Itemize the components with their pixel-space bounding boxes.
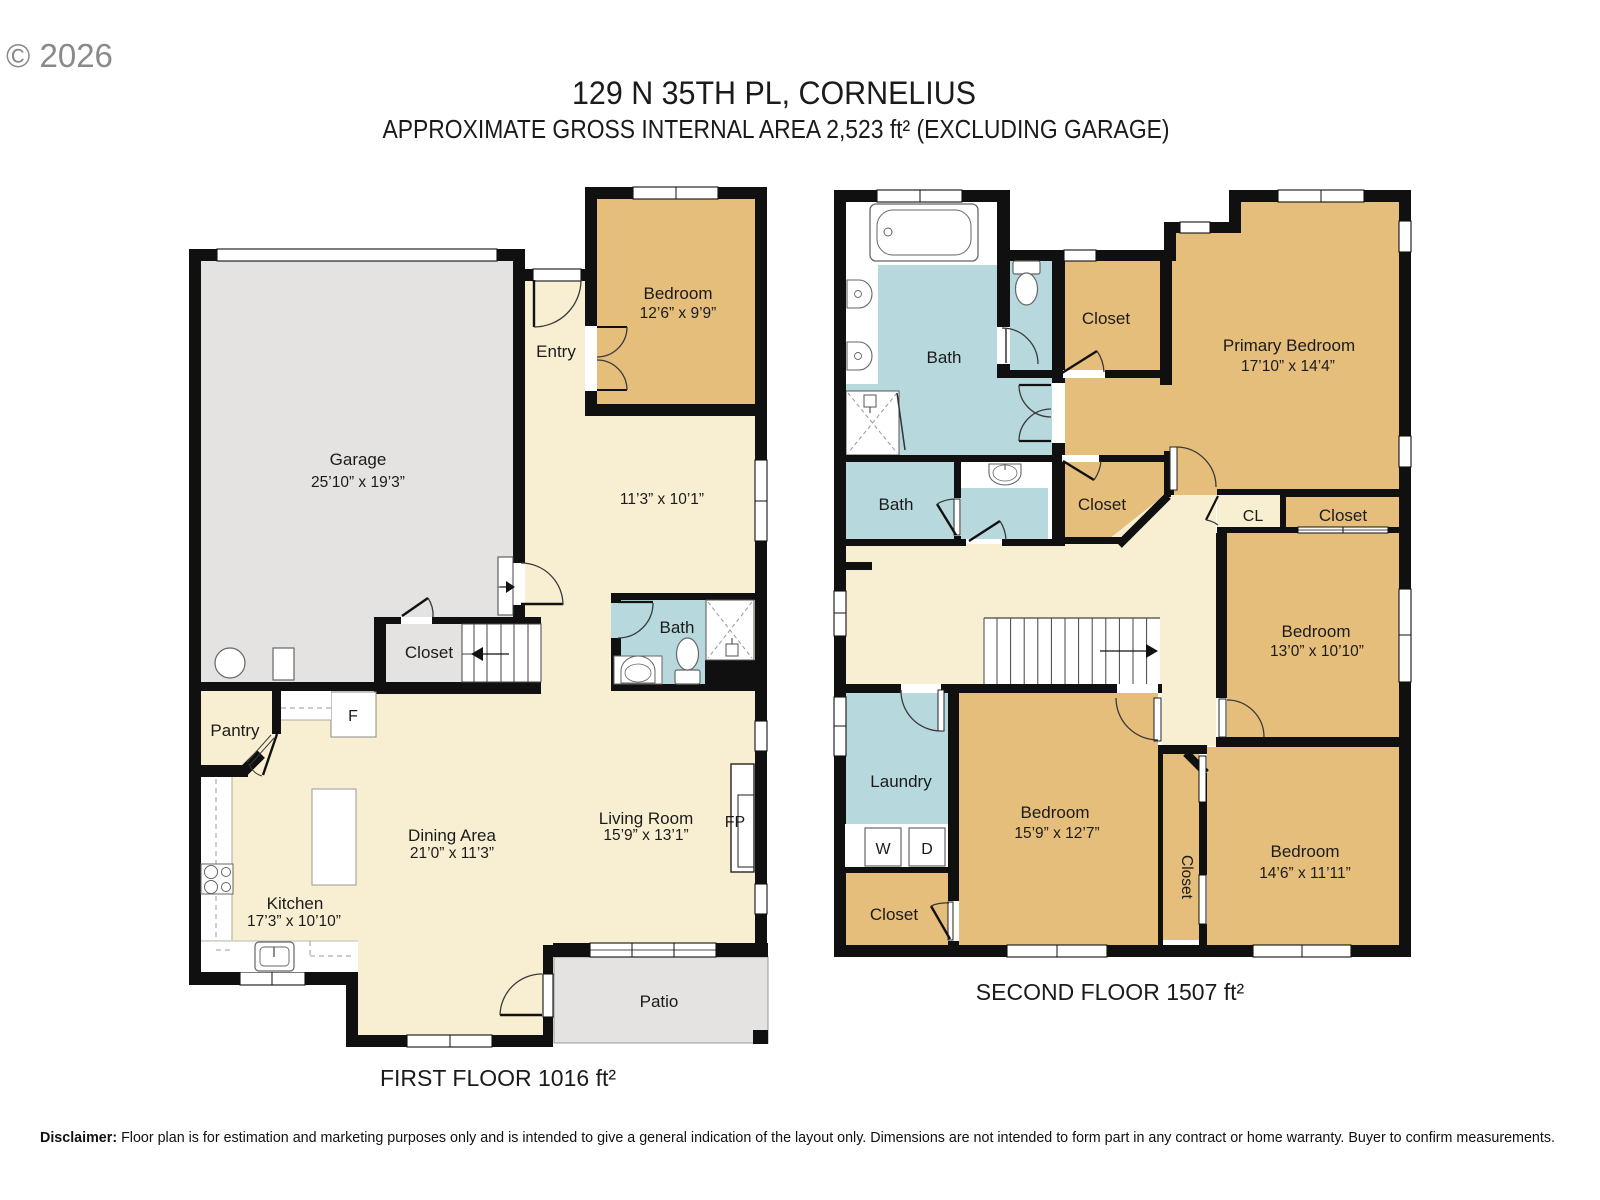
svg-text:APPROXIMATE GROSS INTERNAL ARE: APPROXIMATE GROSS INTERNAL AREA 2,523 ft… xyxy=(383,116,1170,144)
svg-text:Closet: Closet xyxy=(1078,495,1126,514)
svg-text:Laundry: Laundry xyxy=(870,772,932,791)
svg-text:25’10” x 19’3”: 25’10” x 19’3” xyxy=(311,474,405,491)
svg-text:Bedroom: Bedroom xyxy=(644,284,713,303)
svg-text:Closet: Closet xyxy=(870,905,918,924)
svg-text:15’9” x 13’1”: 15’9” x 13’1” xyxy=(603,827,688,844)
svg-text:Bath: Bath xyxy=(879,495,914,514)
svg-text:13’0” x 10’10”: 13’0” x 10’10” xyxy=(1270,643,1364,660)
svg-text:14’6” x 11’11”: 14’6” x 11’11” xyxy=(1259,865,1351,882)
svg-text:Garage: Garage xyxy=(330,450,387,469)
svg-text:Disclaimer: Floor plan is for: Disclaimer: Floor plan is for estimation… xyxy=(40,1130,1555,1146)
svg-text:Bedroom: Bedroom xyxy=(1282,622,1351,641)
svg-text:W: W xyxy=(875,841,891,858)
svg-text:Closet: Closet xyxy=(1082,309,1130,328)
svg-text:Closet: Closet xyxy=(1319,506,1367,525)
svg-text:Entry: Entry xyxy=(536,342,576,361)
svg-text:15’9” x 12’7”: 15’9” x 12’7” xyxy=(1014,825,1099,842)
svg-text:Kitchen: Kitchen xyxy=(267,894,324,913)
svg-text:FIRST FLOOR 1016 ft²: FIRST FLOOR 1016 ft² xyxy=(380,1065,616,1091)
svg-text:Bath: Bath xyxy=(660,618,695,637)
svg-text:Bedroom: Bedroom xyxy=(1021,803,1090,822)
svg-text:Dining Area: Dining Area xyxy=(408,826,496,845)
svg-text:11’3” x 10’1”: 11’3” x 10’1” xyxy=(620,491,704,508)
svg-text:17’3” x 10’10”: 17’3” x 10’10” xyxy=(247,913,341,930)
svg-text:Closet: Closet xyxy=(405,643,453,662)
svg-text:© 2026: © 2026 xyxy=(6,37,113,74)
svg-text:Pantry: Pantry xyxy=(210,721,260,740)
svg-text:Closet: Closet xyxy=(1178,855,1195,900)
svg-text:129 N 35TH PL, CORNELIUS: 129 N 35TH PL, CORNELIUS xyxy=(572,75,976,111)
svg-text:12’6” x 9’9”: 12’6” x 9’9” xyxy=(640,305,717,322)
svg-text:Primary Bedroom: Primary Bedroom xyxy=(1223,336,1355,355)
svg-text:SECOND FLOOR 1507 ft²: SECOND FLOOR 1507 ft² xyxy=(976,979,1245,1005)
svg-text:F: F xyxy=(348,708,358,725)
svg-text:Living Room: Living Room xyxy=(599,809,694,828)
svg-text:Bedroom: Bedroom xyxy=(1271,842,1340,861)
svg-text:21’0” x 11’3”: 21’0” x 11’3” xyxy=(410,845,494,862)
svg-text:Patio: Patio xyxy=(640,992,679,1011)
svg-text:FP: FP xyxy=(725,814,745,831)
svg-text:17’10” x 14’4”: 17’10” x 14’4” xyxy=(1241,358,1335,375)
svg-text:D: D xyxy=(921,841,933,858)
svg-text:Bath: Bath xyxy=(927,348,962,367)
svg-text:CL: CL xyxy=(1243,508,1264,525)
